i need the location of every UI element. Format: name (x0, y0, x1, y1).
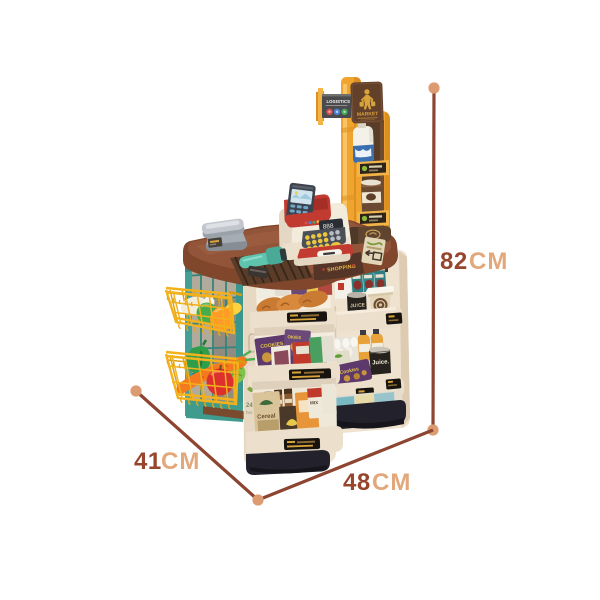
svg-text:82: 82 (440, 248, 468, 275)
svg-text:CM: CM (372, 469, 411, 496)
svg-text:MARKET: MARKET (357, 111, 379, 118)
svg-text:CM: CM (161, 448, 200, 475)
svg-text:48: 48 (343, 469, 371, 496)
svg-text:LOGISTICS: LOGISTICS (327, 99, 351, 104)
svg-text:24: 24 (246, 403, 253, 409)
svg-text:41: 41 (134, 448, 162, 475)
svg-text:CM: CM (469, 248, 508, 275)
svg-text:hrs: hrs (246, 410, 253, 415)
svg-text:Juice.: Juice. (372, 359, 390, 366)
svg-text:MIX: MIX (310, 400, 319, 406)
svg-text:JU!CE: JU!CE (350, 302, 366, 309)
svg-text:OKIES: OKIES (287, 334, 301, 340)
